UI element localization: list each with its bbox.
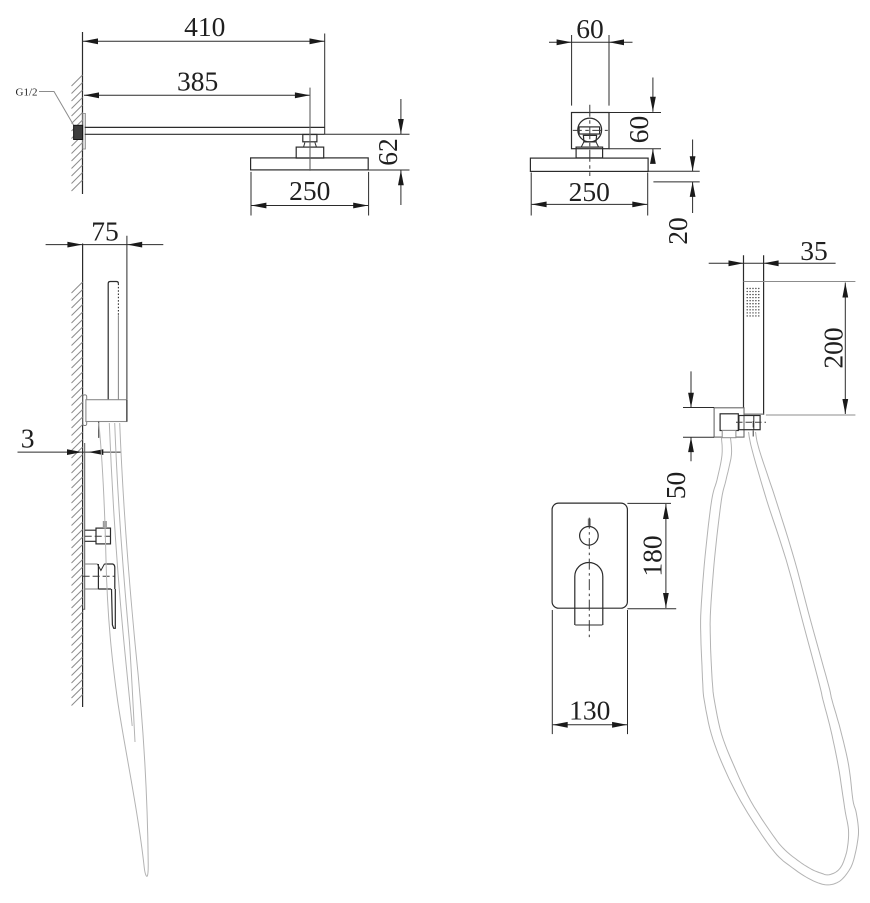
svg-text:385: 385 <box>177 65 218 96</box>
svg-text:200: 200 <box>818 327 849 368</box>
svg-text:250: 250 <box>289 175 330 206</box>
svg-text:250: 250 <box>569 176 610 207</box>
svg-text:3: 3 <box>21 423 35 454</box>
svg-text:G1/2: G1/2 <box>16 87 38 99</box>
svg-text:410: 410 <box>184 11 225 42</box>
svg-text:60: 60 <box>576 13 604 44</box>
svg-text:60: 60 <box>623 116 654 144</box>
svg-text:75: 75 <box>91 215 119 246</box>
svg-text:35: 35 <box>800 235 828 266</box>
svg-text:130: 130 <box>569 695 610 726</box>
svg-text:62: 62 <box>372 138 403 166</box>
svg-text:20: 20 <box>662 217 693 245</box>
svg-text:50: 50 <box>660 472 691 500</box>
svg-text:180: 180 <box>637 535 668 576</box>
